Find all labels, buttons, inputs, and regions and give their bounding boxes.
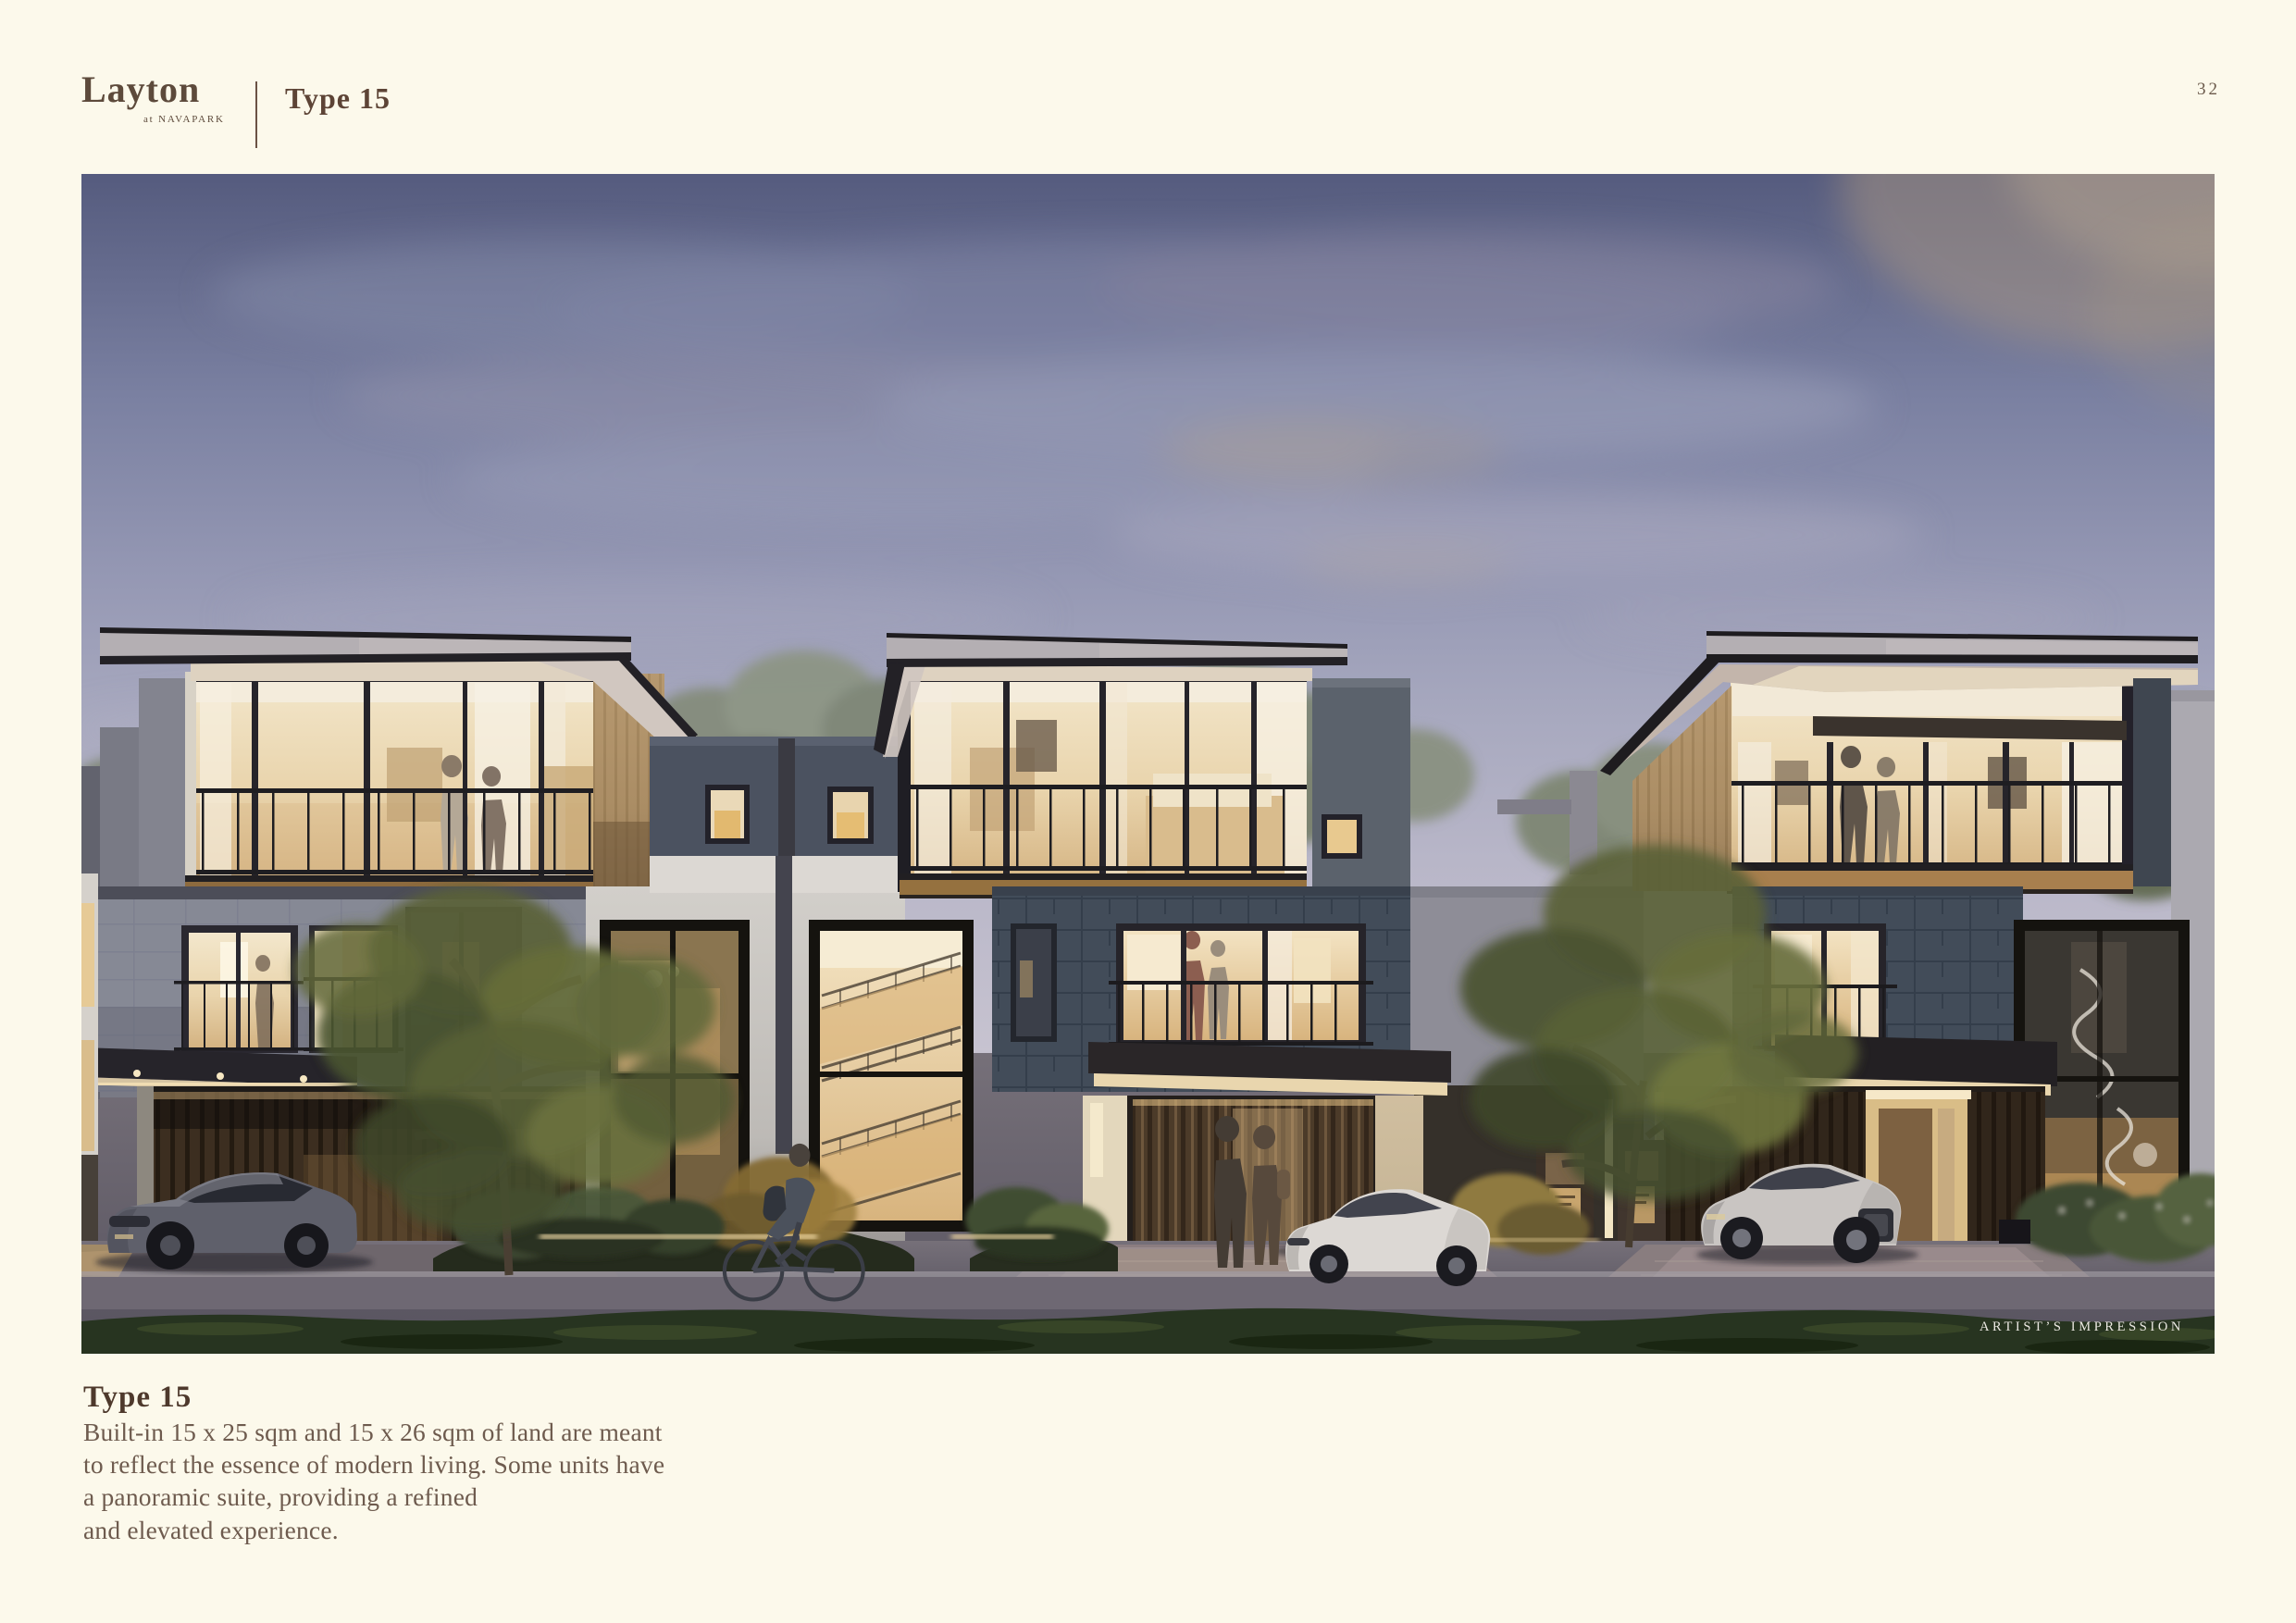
svg-text:ARTIST’S IMPRESSION: ARTIST’S IMPRESSION — [1980, 1319, 2184, 1334]
